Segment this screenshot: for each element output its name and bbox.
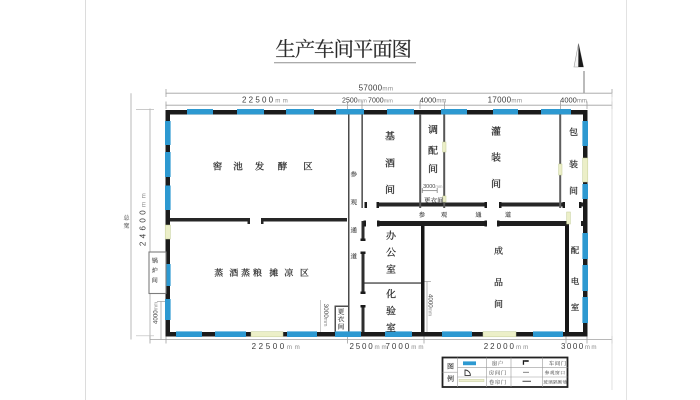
svg-text:2500mm: 2500mm <box>350 342 389 351</box>
svg-text:4000mm: 4000mm <box>152 302 159 324</box>
svg-text:22500mm: 22500mm <box>242 95 290 104</box>
svg-text:4000mm: 4000mm <box>427 294 434 316</box>
svg-text:22000mm: 22000mm <box>484 342 531 351</box>
svg-text:22500mm: 22500mm <box>252 342 303 351</box>
svg-text:57000mm: 57000mm <box>359 84 394 93</box>
svg-text:17000mm: 17000mm <box>488 95 523 104</box>
svg-text:7000mm: 7000mm <box>368 97 393 104</box>
svg-text:2500mm: 2500mm <box>342 97 367 104</box>
svg-text:24600mm: 24600mm <box>139 190 148 246</box>
svg-text:7000mm: 7000mm <box>385 342 425 351</box>
svg-text:3000mm: 3000mm <box>561 342 598 351</box>
svg-text:3000mm: 3000mm <box>322 304 329 327</box>
